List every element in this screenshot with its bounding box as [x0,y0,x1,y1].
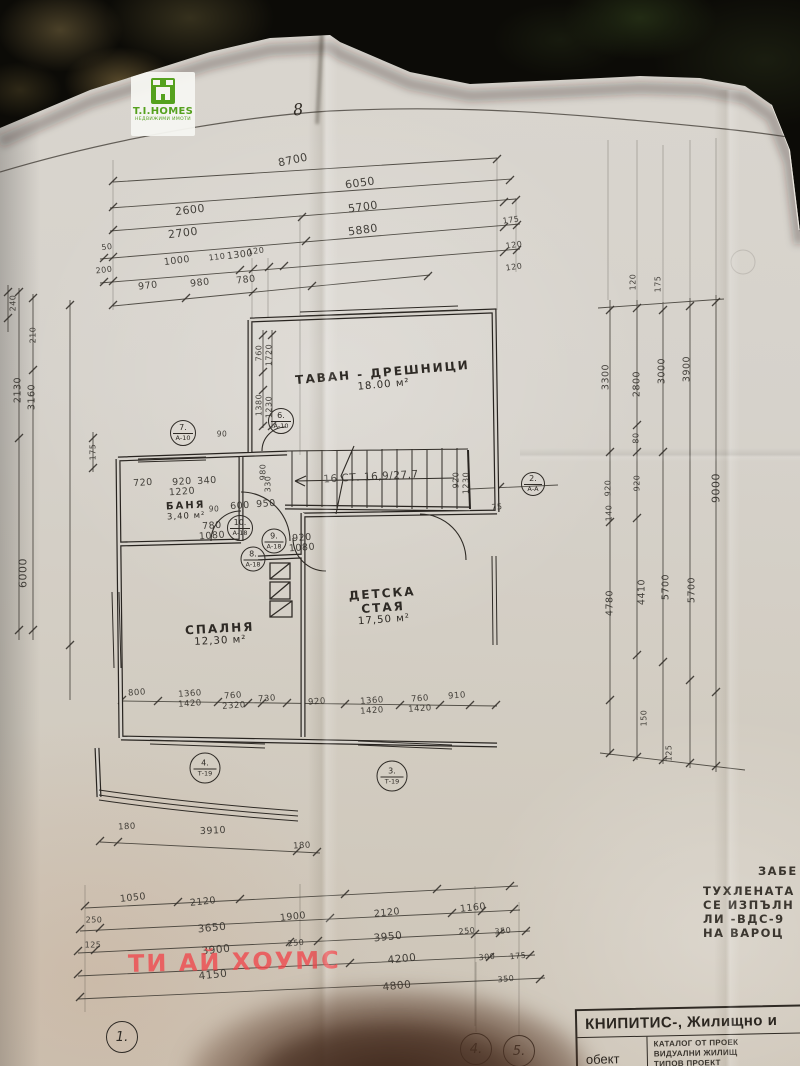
dimension-label: 6000 [17,558,30,588]
logo-subtitle-text: НЕДВИЖИМИ ИМОТИ [131,117,195,122]
dimension-label: 1220 [169,486,196,499]
dimension-label: 3910 [200,825,227,837]
dimension-label: 150 [640,710,649,727]
dimension-label: 760 [255,345,264,362]
detail-marker-code: А-10 [273,422,288,431]
axis-marker: 1. [106,1021,138,1053]
detail-marker-number: 6. [271,411,290,422]
dimension-label: 920 [452,472,461,489]
dimension-label: 90 [217,430,228,439]
note-line: НА ВАРОЦ [703,926,784,940]
detail-marker: 7.А-10 [170,420,196,446]
detail-marker-code: Т-19 [385,777,400,786]
dimension-label: 4410 [637,579,648,605]
dimension-label: 920 [308,696,326,707]
agency-logo: T.I.HOMES НЕДВИЖИМИ ИМОТИ [131,72,195,136]
note-line: ТУХЛЕНАТА [703,884,795,898]
dimension-label: 350 [497,974,515,985]
dimension-label: 1420 [360,705,384,717]
watermark-text: ТИ АЙ ХОУМС [128,946,341,978]
dimension-label: 1080 [199,530,226,543]
room-area: 3,40 м² [166,510,206,522]
detail-marker: 6.А-10 [268,408,294,434]
dimension-label: 600 [230,500,250,512]
dimension-label: 920 [633,475,642,492]
detail-marker-code: А-18 [266,542,281,551]
title-block-object-label: обект [577,1037,649,1066]
dimension-label: 730 [258,693,276,704]
dimension-label: 920 [604,480,613,497]
sheet-border-line [0,109,800,172]
room-label: СПАЛНЯ12,30 м² [185,620,256,649]
dimension-label: 90 [209,505,220,514]
detail-marker-code: А-А [527,485,538,494]
detail-marker-code: А-18 [245,560,260,569]
detail-marker-code: А-18 [232,529,247,538]
dimension-label: 175 [654,276,663,293]
dimension-label: 5700 [687,577,698,603]
title-block: КНИПИТИС-, Жилищно и обект КАТАЛОГ ОТ ПР… [575,1003,800,1066]
axis-marker: 5. [503,1035,535,1066]
detail-marker-number: 2. [524,474,542,485]
dimension-label: 9000 [710,473,723,503]
detail-marker-code: Т-19 [198,769,213,778]
dimension-label: 3160 [27,384,38,410]
dimension-label: 950 [256,498,276,510]
detail-marker-number: 8. [244,549,262,560]
pencil-scribble [731,250,755,274]
dimension-label: 2800 [632,371,643,397]
dimension-label: 2130 [13,377,24,403]
detail-marker: 2.А-А [521,472,545,496]
dimension-label: 300 [478,952,496,963]
note-line: ЗАБЕ [758,864,798,878]
dimension-label: 125 [85,941,102,950]
dimension-label: 80 [632,432,641,443]
detail-marker: 10.А-18 [227,515,253,541]
dimension-label: 2320 [222,700,246,712]
note-line: СЕ ИЗПЪЛН [703,898,794,912]
dimension-label: 4780 [605,590,616,616]
detail-marker-number: 10. [230,518,249,529]
dimension-label: 175 [89,444,98,461]
dimension-label: 120 [629,274,638,291]
dimension-label: 3000 [657,358,668,384]
page-number: 8 [292,100,304,120]
house-logo-icon [151,78,175,104]
dimension-label: 5700 [661,574,672,600]
detail-marker-number: 4. [193,758,216,769]
note-line: ЛИ -ВДС-9 [703,912,785,926]
dimension-label: 1380 [255,394,264,416]
detail-marker: 9.А-18 [262,529,287,554]
dimension-label: 3900 [682,356,693,382]
room-label: ДЕТСКАСТАЯ17,50 м² [348,584,418,628]
dimension-label: 210 [29,327,38,344]
dimension-label: 250 [86,916,103,925]
dimension-label: 910 [448,690,466,701]
dimension-label: 240 [9,295,18,312]
dimension-label: 125 [665,745,674,762]
detail-marker-code: А-10 [175,434,190,443]
detail-marker: 3.Т-19 [377,761,408,792]
dimension-label: 720 [133,477,153,489]
dimension-label: 180 [118,822,136,833]
photo-scene: 8700605026005700175270058801205010001101… [0,0,800,1066]
dimension-label: 330 [264,476,273,493]
dimension-label: 800 [128,687,146,698]
blueprint-paper: 8700605026005700175270058801205010001101… [0,0,800,1066]
dimension-label: 350 [494,926,512,937]
dimension-label: 175 [509,951,527,962]
terrace-railing [99,790,298,821]
floor-plan-drawing [0,0,800,1066]
detail-marker-number: 7. [173,423,192,434]
dimension-label: 3300 [601,364,612,390]
detail-marker-number: 3. [380,766,403,777]
axis-marker: 4. [460,1033,492,1065]
dimension-label: 1420 [408,703,432,715]
detail-marker: 8.А-18 [241,547,266,572]
dimension-label: 340 [197,475,217,487]
title-block-header: КНИПИТИС-, Жилищно и [577,1005,800,1038]
dimension-label: 1230 [462,472,471,494]
chimney-block [270,563,292,617]
dimension-label: 250 [458,926,476,937]
room-label: БАНЯ3,40 м² [166,499,206,522]
catalog-lines: КАТАЛОГ ОТ ПРОЕКВИДУАЛНИ ЖИЛИЩТИПОВ ПРОЕ… [647,1032,800,1066]
dimension-label: 180 [293,841,311,852]
dimension-label: 1080 [289,542,316,555]
detail-marker-number: 9. [265,531,283,542]
logo-brand-text: T.I.HOMES [131,106,195,117]
dimension-label: 140 [605,505,614,522]
detail-marker: 4.Т-19 [190,753,221,784]
dimension-label: 50 [101,242,113,252]
dimension-label: 1420 [178,698,202,710]
dimension-label: 75 [491,502,503,512]
dimension-label: 1720 [265,344,274,366]
